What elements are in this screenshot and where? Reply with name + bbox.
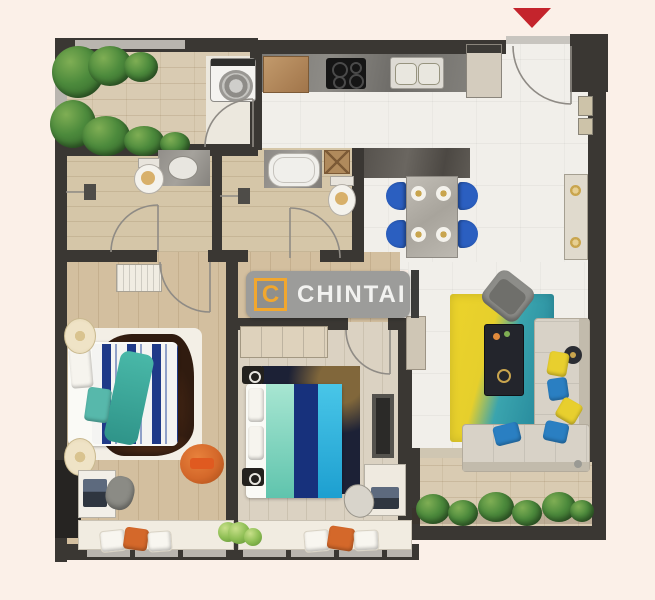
bath-cabinet <box>324 150 350 174</box>
sofa-section-horizontal <box>462 424 590 472</box>
plant-icon <box>416 494 450 524</box>
bathtub-inner <box>273 157 315 183</box>
bench-cushion <box>147 530 172 553</box>
tv-console <box>406 316 426 370</box>
entrance-threshold <box>506 36 572 44</box>
dining-table <box>406 176 458 258</box>
decor-bowl <box>570 185 581 196</box>
flower-decor-icon <box>64 318 96 354</box>
sofa-backrest <box>463 462 589 471</box>
plant-icon <box>478 492 514 522</box>
burner <box>333 76 346 89</box>
balcony-drain <box>574 460 582 468</box>
floor-plan: C CHINTAI <box>0 0 655 600</box>
sofa-pillow-yellow <box>546 350 570 377</box>
table-decor <box>497 369 511 383</box>
coffee-table <box>484 324 524 396</box>
toilet-lid <box>141 171 155 185</box>
vanity-counter <box>158 150 210 186</box>
nightstand-speaker <box>242 468 264 486</box>
cooktop-icon <box>326 58 366 89</box>
tv-screen <box>376 398 390 454</box>
bar-counter <box>364 148 470 178</box>
speaker-cone <box>249 473 261 485</box>
pouf-strap <box>190 458 214 469</box>
logo-monogram: C <box>262 283 279 307</box>
wardrobe <box>240 326 328 358</box>
washer-drum <box>219 70 253 102</box>
wall-balcony-bottom <box>404 526 606 540</box>
chintai-watermark: C CHINTAI <box>246 271 410 318</box>
entrance-arrow-icon <box>513 8 551 28</box>
wall-bedroom-divider <box>226 250 238 546</box>
wall-bath-divider-1 <box>212 148 222 252</box>
plant-icon <box>448 500 478 526</box>
wall-balcony-right <box>592 448 606 540</box>
nightstand-speaker <box>242 366 264 384</box>
chintai-monogram-icon: C <box>254 278 287 311</box>
window-top-balcony <box>75 40 185 49</box>
cabinet-top <box>467 45 501 53</box>
wall-niche <box>578 96 593 116</box>
place-setting <box>436 227 451 242</box>
dining-chair <box>386 182 406 210</box>
shoe-cabinet <box>466 44 502 98</box>
tv-panel <box>372 394 394 458</box>
sink-basin <box>418 63 440 85</box>
speaker-cone <box>249 371 261 383</box>
pouf-ottoman <box>180 444 224 484</box>
laptop-icon <box>83 479 107 507</box>
wall-bath-bottom-a <box>55 250 157 262</box>
table-decor <box>504 331 510 337</box>
wall-bath-bottom-c <box>320 250 360 262</box>
table-decor <box>493 333 500 340</box>
bathtub-icon <box>268 153 320 187</box>
burner <box>350 62 362 74</box>
entry-console <box>564 174 588 260</box>
plant-icon <box>124 52 158 82</box>
bed-pillow <box>248 388 264 422</box>
washing-machine-icon <box>210 58 256 102</box>
place-setting <box>411 227 426 242</box>
logo-wordmark: CHINTAI <box>297 281 407 309</box>
bench-cushion-orange <box>326 525 355 552</box>
plant-icon <box>244 528 262 546</box>
toilet-icon <box>328 184 356 216</box>
wall-niche <box>578 118 593 135</box>
bed-band-cyan <box>318 384 342 498</box>
bed-pillow <box>248 426 264 460</box>
bench-cushion-orange <box>123 526 150 551</box>
vanity-sink <box>168 156 198 180</box>
bed-band-navy <box>294 384 318 498</box>
plant-icon <box>570 500 594 522</box>
bed-band-mint <box>266 384 294 498</box>
kitchen-cabinet <box>263 56 309 93</box>
toilet-icon <box>134 164 164 194</box>
monitor-icon <box>371 487 399 509</box>
bed-pillow-teal <box>84 386 112 423</box>
kitchen-sink-icon <box>390 57 444 89</box>
dining-chair <box>386 220 406 248</box>
burner <box>349 74 364 89</box>
place-setting <box>411 186 426 201</box>
plant-icon <box>82 116 130 156</box>
washer-control-panel <box>211 59 255 66</box>
sink-basin <box>395 63 417 85</box>
table-decor <box>570 352 576 358</box>
bench-cushion <box>353 529 379 551</box>
decor-bowl <box>570 237 581 248</box>
wall-tv <box>411 270 419 318</box>
toilet-lid <box>335 192 348 205</box>
place-setting <box>436 186 451 201</box>
wardrobe <box>116 264 162 292</box>
plant-icon <box>512 500 542 526</box>
